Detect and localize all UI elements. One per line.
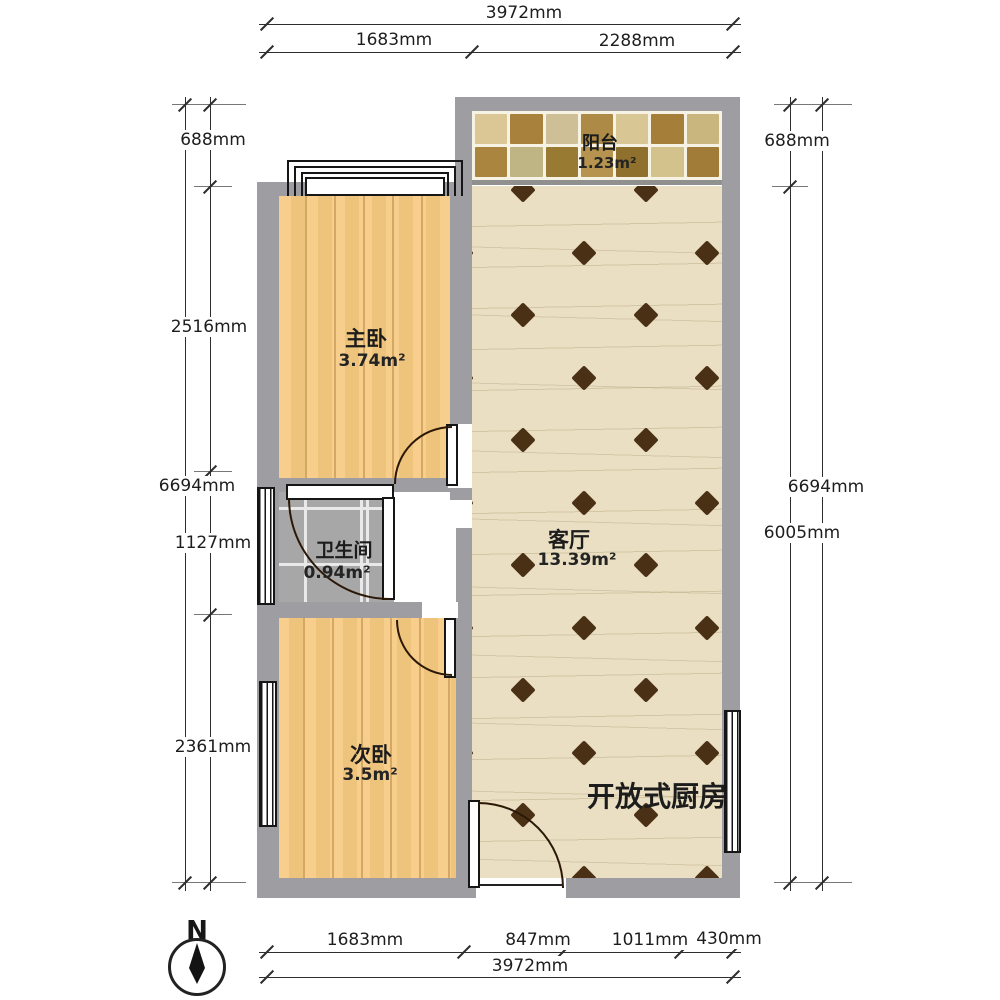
dim-top-seg-line — [259, 52, 741, 53]
second-bedroom-area: 3.5m² — [342, 765, 397, 785]
second-door-opening — [422, 602, 458, 618]
bathroom-label: 卫生间 — [315, 536, 372, 563]
dim-bottom-total-line — [259, 977, 741, 978]
floor-diamond — [510, 302, 535, 327]
dim-left-seg-2: 1127mm — [172, 533, 254, 553]
floor-diamond — [472, 490, 474, 515]
open-kitchen-label: 开放式厨房 — [587, 775, 727, 815]
balcony-label: 阳台 — [582, 129, 618, 155]
dim-top-seg-0: 1683mm — [353, 30, 435, 50]
floor-diamond — [633, 427, 658, 452]
dim-bottom-seg-3: 430mm — [693, 929, 765, 949]
dim-right-seg-1: 6005mm — [761, 523, 843, 543]
dim-left-seg-3: 2361mm — [172, 737, 254, 757]
mosaic-tile — [546, 114, 578, 144]
mosaic-tile — [475, 147, 507, 177]
mosaic-tile — [687, 114, 719, 144]
floor-diamond — [571, 615, 596, 640]
floor-diamond — [510, 552, 535, 577]
dim-right-total: 6694mm — [785, 477, 867, 497]
mosaic-tile — [651, 114, 683, 144]
bathroom-area: 0.94m² — [303, 563, 370, 583]
dim-bottom-seg-1: 847mm — [502, 930, 574, 950]
floor-diamond — [571, 865, 596, 878]
floor-diamond — [571, 365, 596, 390]
dim-bottom-seg-0: 1683mm — [324, 930, 406, 950]
floor-diamond — [510, 677, 535, 702]
master-bedroom-label: 主卧 — [345, 323, 387, 353]
floor-diamond — [694, 865, 719, 878]
dim-left-seg-1: 2516mm — [168, 317, 250, 337]
bathroom-window — [257, 487, 275, 605]
mosaic-tile — [475, 114, 507, 144]
mosaic-tile — [616, 114, 648, 144]
dim-top-seg-1: 2288mm — [596, 31, 678, 51]
dim-ext — [774, 882, 852, 883]
floor-diamond — [694, 240, 719, 265]
entry-door-threshold — [480, 884, 562, 886]
wall-master-living — [450, 182, 472, 424]
floor-diamond — [472, 240, 474, 265]
floor-diamond — [694, 490, 719, 515]
dim-top-total-line — [259, 24, 741, 25]
mosaic-tile — [510, 114, 542, 144]
dim-ext — [194, 471, 232, 472]
dim-right-seg-0: 688mm — [761, 131, 833, 151]
bay-window-sill — [305, 177, 445, 196]
floor-diamond — [694, 615, 719, 640]
wall-balcony-top — [455, 97, 740, 111]
dim-left-seg-0: 688mm — [177, 130, 249, 150]
dim-ext — [194, 186, 232, 187]
dim-top-total: 3972mm — [483, 3, 565, 23]
floor-diamond — [510, 427, 535, 452]
floor-diamond — [633, 552, 658, 577]
floor-diamond — [571, 240, 596, 265]
floor-diamond — [472, 365, 474, 390]
master-bedroom-area: 3.74m² — [338, 351, 405, 371]
floorplan-canvas: 阳台 1.23m² 主卧 3.74m² 卫生间 0.94m² 客厅 13.39m… — [0, 0, 1000, 1000]
balcony-area: 1.23m² — [577, 154, 636, 172]
floor-diamond — [571, 490, 596, 515]
dim-ext — [774, 104, 852, 105]
mosaic-tile — [687, 147, 719, 177]
compass-needle-base — [189, 968, 205, 984]
mosaic-tile — [651, 147, 683, 177]
mosaic-tile — [546, 147, 578, 177]
floor-diamond — [510, 186, 535, 203]
dim-bottom-seg-line — [259, 952, 741, 953]
mosaic-tile — [510, 147, 542, 177]
floor-diamond — [472, 740, 474, 765]
floor-diamond — [571, 740, 596, 765]
floor-diamond — [633, 186, 658, 203]
balcony-living-divider — [472, 180, 722, 185]
floor-diamond — [694, 365, 719, 390]
second-bedroom-window — [259, 681, 277, 827]
compass-needle-icon — [189, 943, 205, 968]
dim-left-total: 6694mm — [156, 476, 238, 496]
floor-diamond — [633, 677, 658, 702]
dim-ext — [194, 614, 232, 615]
floor-diamond — [633, 302, 658, 327]
dim-bottom-total: 3972mm — [489, 956, 571, 976]
floor-diamond — [472, 615, 474, 640]
living-room-area: 13.39m² — [538, 550, 617, 570]
floor-diamond — [694, 740, 719, 765]
dim-bottom-seg-2: 1011mm — [609, 930, 691, 950]
